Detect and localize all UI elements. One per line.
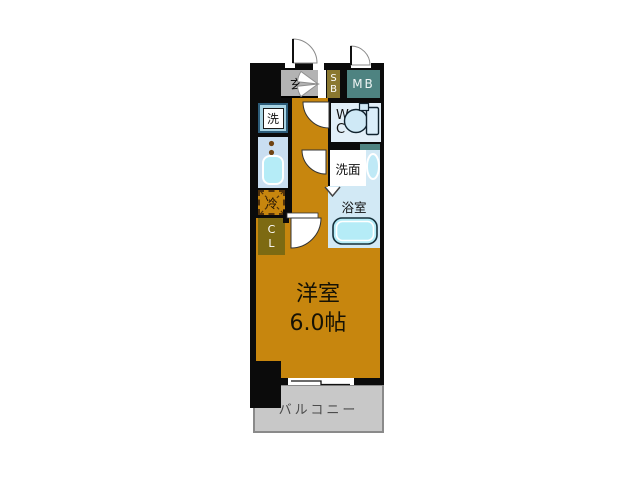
fixtures-overlay [0,0,640,480]
room-door-icon [283,210,321,248]
toilet-icon [345,104,379,135]
kitchen-sink-icon [263,156,283,184]
washroom-door-icon [302,150,326,174]
bathtub-icon [333,218,377,244]
meterbox-door-icon [351,46,370,65]
entrance-door-icon [293,39,317,63]
entrance-inner-door-icon [298,72,319,97]
wc-door-icon [303,102,329,128]
fridge-cross-icon [261,192,283,213]
sliding-window-icon [288,378,354,385]
washbasin-icon [367,154,379,179]
structural-pillar [250,361,281,408]
floor-plan-canvas: バルコニー 玄 S B MB W C 洗面 浴室 洗 冷 C L 洋室 6.0 [0,0,640,480]
stove-burners-icon [269,141,274,155]
bath-folding-door-icon [325,187,340,196]
